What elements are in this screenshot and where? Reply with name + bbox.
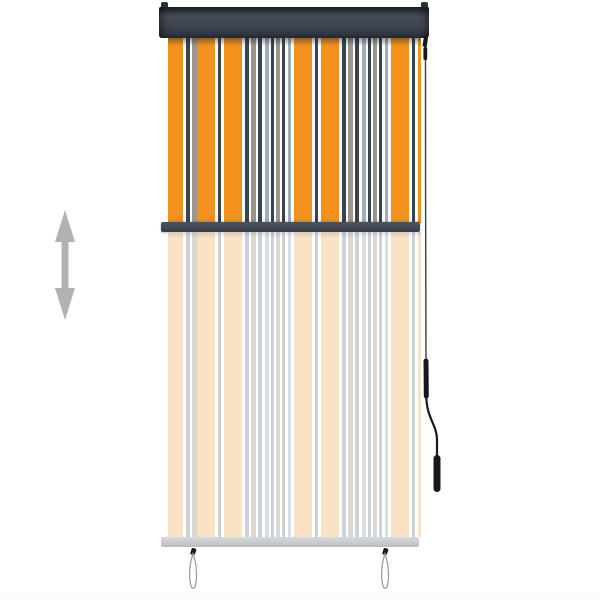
blind-bottom-rail [161, 222, 420, 232]
pull-cord [410, 34, 450, 499]
cord-lower-line [426, 396, 437, 457]
ghost-pull-loop-right [377, 548, 393, 598]
cord-bead [423, 47, 427, 60]
cord-hook [423, 36, 429, 48]
height-adjust-arrow-icon [50, 208, 80, 322]
cord-line [425, 60, 426, 362]
ghost-bottom-rail [161, 537, 419, 547]
ghost-pull-loop-left [185, 548, 201, 598]
roller-blind-product-photo [0, 0, 600, 600]
blind-fabric-extended [168, 38, 421, 223]
background-floor-shadow [0, 593, 600, 600]
blind-fabric-ghost-extension [168, 232, 421, 537]
cord-handle [434, 455, 441, 492]
blind-cassette [159, 7, 429, 38]
